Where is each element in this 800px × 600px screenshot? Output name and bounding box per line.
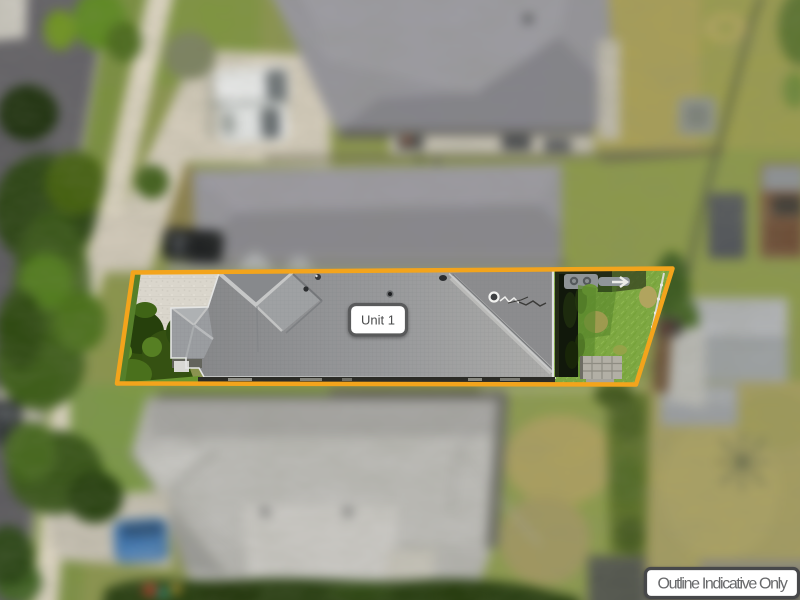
svg-text:Outline Indicative Only: Outline Indicative Only <box>657 576 787 593</box>
svg-text:Unit 1: Unit 1 <box>361 313 395 328</box>
